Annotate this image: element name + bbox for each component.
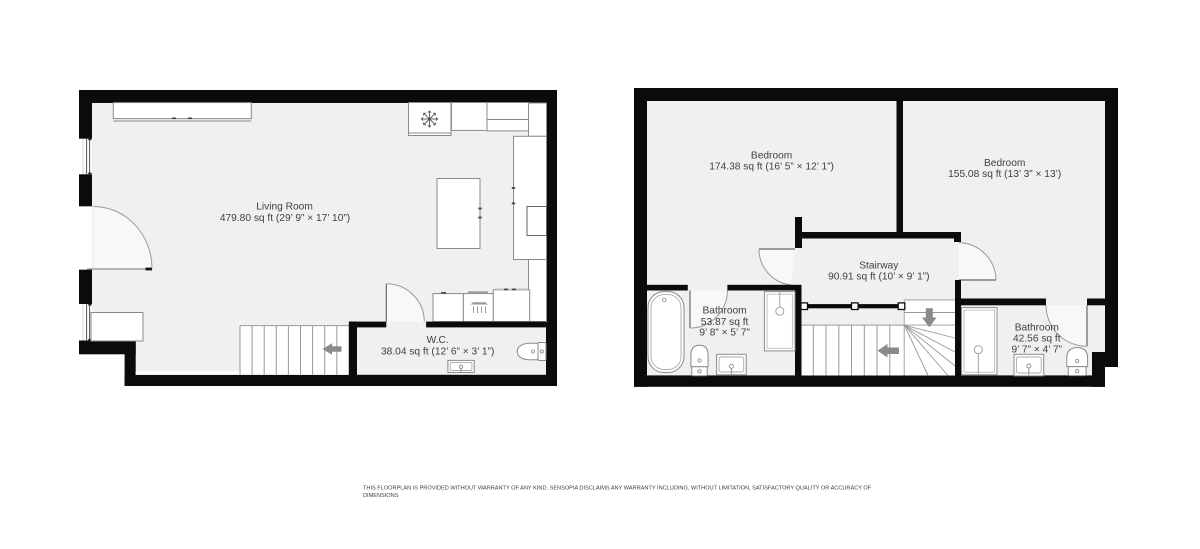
svg-text:42.56 sq ft: 42.56 sq ft [1013, 334, 1061, 345]
svg-text:174.38 sq ft (16’ 5” × 12’ 1”): 174.38 sq ft (16’ 5” × 12’ 1”) [709, 162, 834, 173]
svg-text:Bedroom: Bedroom [984, 158, 1025, 169]
svg-text:Bathroom: Bathroom [703, 306, 747, 317]
svg-text:THIS FLOORPLAN IS PROVIDED WIT: THIS FLOORPLAN IS PROVIDED WITHOUT WARRA… [363, 486, 872, 492]
svg-text:479.80 sq ft (29’ 9” × 17’ 10”: 479.80 sq ft (29’ 9” × 17’ 10”) [220, 213, 350, 224]
svg-text:9’ 7” × 4’ 7”: 9’ 7” × 4’ 7” [1012, 345, 1063, 356]
svg-text:9’ 8” × 5’ 7”: 9’ 8” × 5’ 7” [699, 327, 750, 338]
svg-text:Living Room: Living Room [256, 202, 313, 213]
svg-text:Bedroom: Bedroom [751, 150, 792, 161]
svg-text:90.91 sq ft (10’ × 9’ 1”): 90.91 sq ft (10’ × 9’ 1”) [828, 272, 929, 283]
svg-text:38.04 sq ft (12’ 6” × 3’ 1”): 38.04 sq ft (12’ 6” × 3’ 1”) [381, 347, 494, 358]
svg-text:Bathroom: Bathroom [1015, 323, 1059, 334]
svg-text:155.08 sq ft (13’ 3” × 13’): 155.08 sq ft (13’ 3” × 13’) [948, 169, 1061, 180]
svg-text:Stairway: Stairway [859, 260, 899, 271]
svg-text:W.C.: W.C. [427, 335, 449, 346]
svg-text:DIMENSIONS: DIMENSIONS [363, 493, 399, 499]
